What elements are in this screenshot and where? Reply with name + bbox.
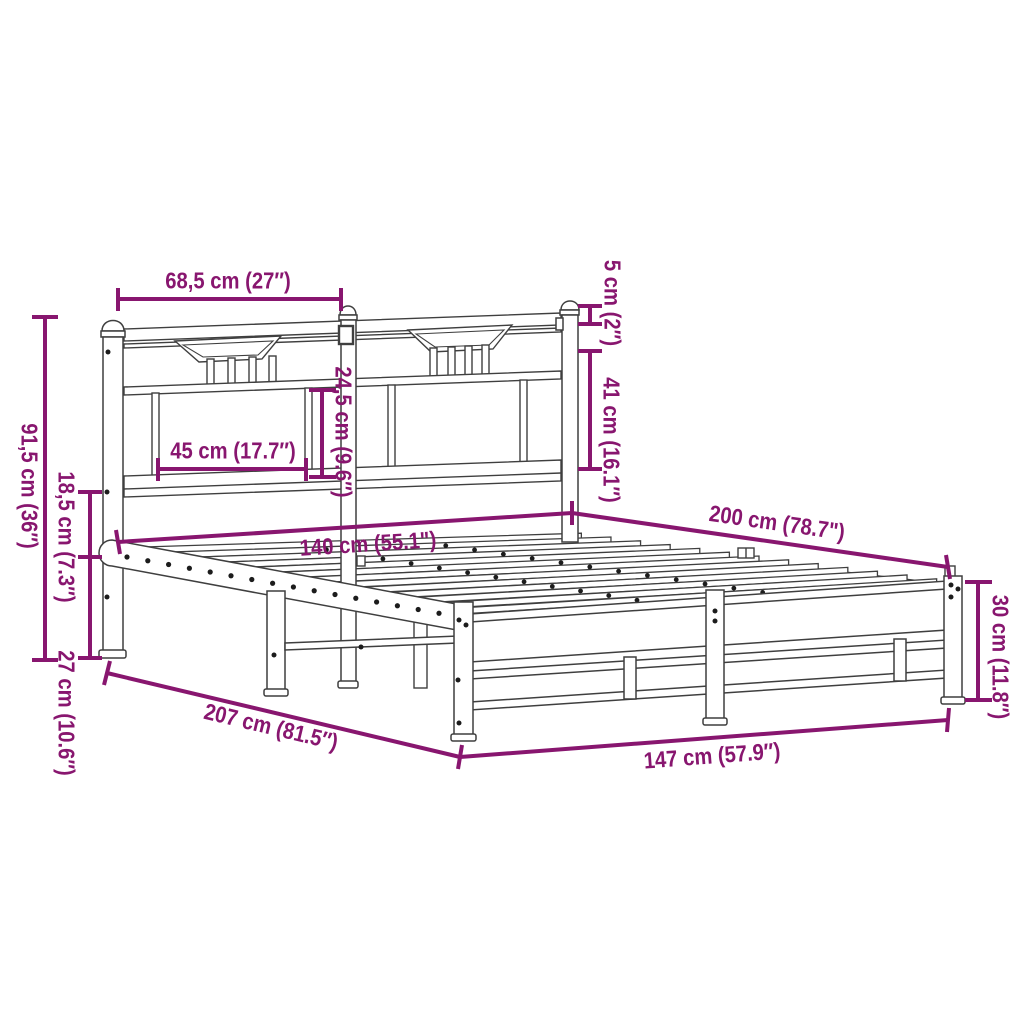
bed-frame-line-art	[0, 0, 1024, 1024]
dim-label-headboard-panel-height: 41 cm (16.1″)	[598, 377, 625, 503]
dim-label-headboard-section-width: 68,5 cm (27″)	[165, 268, 291, 295]
bed-frame-dimension-diagram: 68,5 cm (27″) 5 cm (2″) 41 cm (16.1″) 91…	[0, 0, 1024, 1024]
dim-label-headboard-opening-width: 45 cm (17.7″)	[170, 438, 296, 465]
dim-label-footboard-height: 30 cm (11.8″)	[987, 595, 1014, 719]
dim-label-side-rail-height: 27 cm (10.6″)	[53, 650, 80, 776]
dim-label-headboard-inner-height: 24,5 cm (9.6″)	[330, 366, 357, 497]
dim-label-post-cap-height: 5 cm (2″)	[599, 260, 626, 346]
dim-label-headboard-total-height: 91,5 cm (36″)	[16, 423, 43, 549]
dimension-lines	[32, 288, 992, 769]
dim-label-underbed-clearance: 18,5 cm (7.3″)	[53, 471, 80, 602]
